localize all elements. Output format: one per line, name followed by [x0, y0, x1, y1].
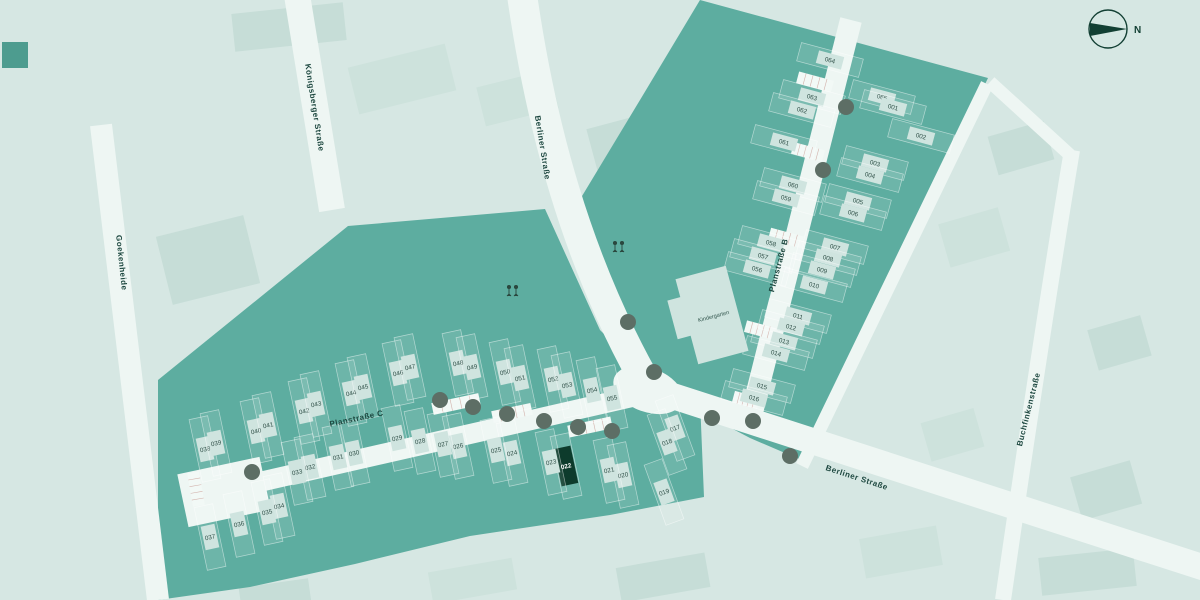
tree-icon	[646, 364, 662, 380]
tree-icon	[465, 399, 481, 415]
building	[348, 44, 457, 115]
tree-icon	[815, 162, 831, 178]
tree-icon	[536, 413, 552, 429]
building	[1038, 548, 1136, 596]
site-plan-map: 0640630620610600590580570560650010020030…	[0, 0, 1200, 600]
building	[428, 558, 517, 600]
building	[616, 552, 711, 600]
tree-icon	[244, 464, 260, 480]
tree-icon	[499, 406, 515, 422]
road-goekenheide	[101, 125, 158, 600]
tree-icon	[620, 314, 636, 330]
building	[156, 215, 260, 305]
tree-icon	[570, 419, 586, 435]
tree-icon	[704, 410, 720, 426]
map-canvas: 0640630620610600590580570560650010020030…	[0, 0, 1200, 600]
compass-needle-icon	[1090, 23, 1127, 36]
building	[1087, 315, 1151, 371]
building	[1070, 460, 1142, 520]
compass: N	[1089, 10, 1141, 48]
building	[938, 207, 1010, 267]
tree-icon	[782, 448, 798, 464]
tree-icon	[432, 392, 448, 408]
tree-icon	[838, 99, 854, 115]
tree-icon	[745, 413, 761, 429]
tree-icon	[604, 423, 620, 439]
accent-square	[2, 42, 28, 68]
building	[859, 526, 943, 579]
building	[921, 408, 985, 462]
compass-north-label: N	[1134, 25, 1141, 36]
